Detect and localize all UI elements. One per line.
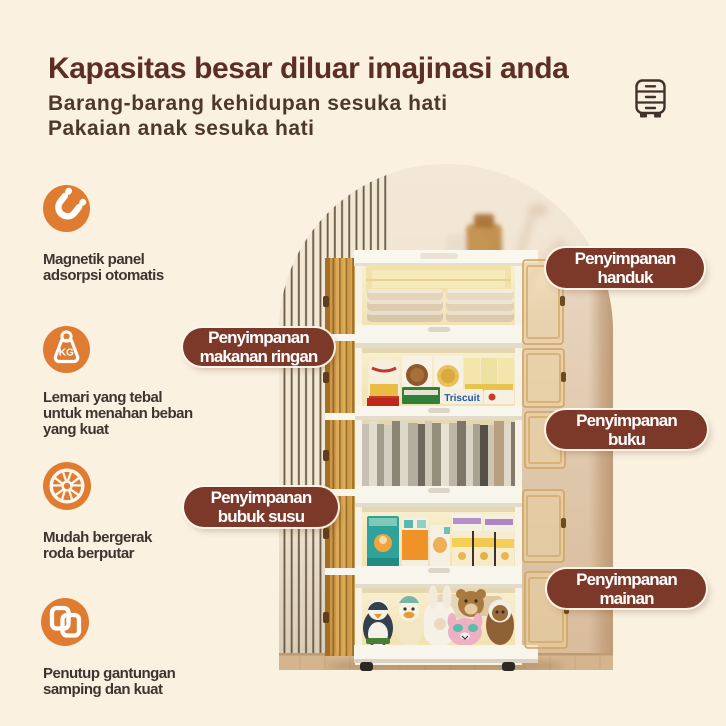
- svg-text:Triscuit: Triscuit: [444, 393, 480, 404]
- svg-text:KG: KG: [59, 347, 74, 358]
